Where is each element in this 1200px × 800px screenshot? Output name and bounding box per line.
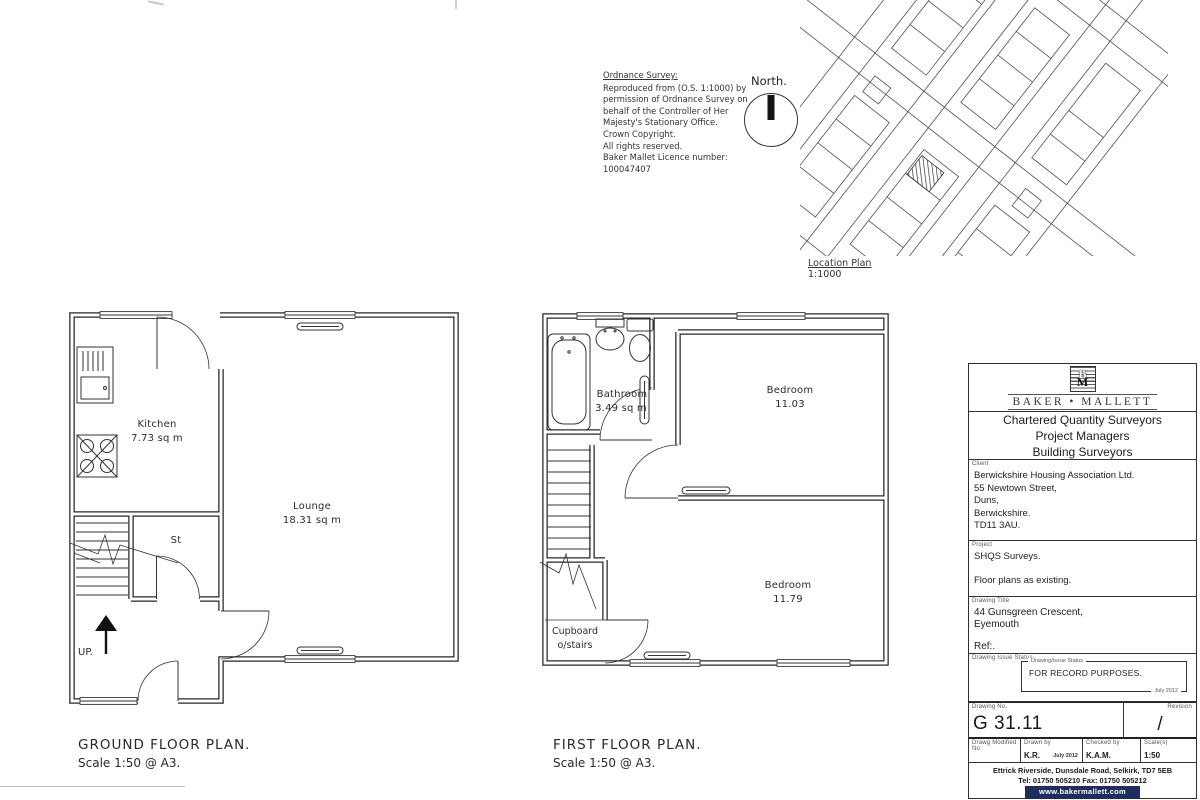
os-note-line: Crown Copyright. (603, 129, 755, 141)
first-floor-detail (540, 313, 850, 667)
os-note-line: All rights reserved. (603, 141, 755, 153)
issue-status-box: Drawing/Issue Status FOR RECORD PURPOSES… (1021, 661, 1187, 692)
door-swing (157, 556, 200, 599)
project-line: Floor plans as existing. (974, 575, 1196, 586)
footer-website: www.bakermallett.com (1025, 786, 1140, 798)
modified-cell: Drawg Modified No (969, 739, 1021, 762)
location-plan-map (800, 0, 1168, 256)
revision-label: Revision (1167, 704, 1192, 710)
stair-treads (548, 450, 591, 549)
drawing-title-line: Eyemouth (974, 619, 1196, 632)
first-floor-plan: Bathroom 3.49 sq m Bedroom 11.03 Bedroom… (532, 298, 902, 698)
room-area-bedroom1: 11.03 (775, 399, 805, 410)
checked-by-cell: Checked by K.A.M. (1083, 739, 1141, 762)
ground-floor-caption: GROUND FLOOR PLAN. Scale 1:50 @ A3. (78, 737, 250, 770)
up-label: UP. (78, 647, 93, 658)
sink-unit (77, 347, 113, 403)
ground-floor-walls (72, 315, 456, 701)
scale-value: 1:50 (1144, 751, 1160, 760)
room-label-bedroom2: Bedroom (765, 580, 812, 591)
os-note-title: Ordnance Survey: (603, 70, 755, 82)
drawing-ref: Ref:. (974, 641, 1196, 654)
stair-treads (76, 523, 128, 595)
footer-section: Ettrick Riverside, Dunsdale Road, Selkir… (969, 763, 1196, 798)
drawing-number-cell: Drawing No. G 31.11 (969, 703, 1124, 737)
client-line: TD11 3AU. (974, 520, 1196, 532)
door-swing (625, 445, 678, 498)
service-line: Chartered Quantity Surveyors (1003, 412, 1162, 428)
os-note-line: Majesty's Stationary Office. (603, 117, 755, 129)
drawn-by-label: Drawn by (1024, 740, 1051, 746)
client-line: Berwickshire Housing Association Ltd. (974, 470, 1196, 482)
room-label-cupboard: Cupboard (552, 626, 598, 637)
logo-section: B M BAKER • MALLETT (969, 364, 1196, 412)
toilet (627, 319, 653, 362)
modified-label: Drawg Modified No (972, 740, 1020, 752)
revision-cell: Revision / (1124, 703, 1196, 737)
location-plan-title: Location Plan (808, 258, 871, 269)
first-floor-caption: FIRST FLOOR PLAN. Scale 1:50 @ A3. (553, 737, 702, 770)
footer-telfax: Tel: 01750 505210 Fax: 01750 505212 (969, 776, 1196, 786)
os-note-line: Reproduced from (O.S. 1:1000) by (603, 83, 755, 95)
ground-floor-title: GROUND FLOOR PLAN. (78, 737, 250, 753)
drawn-date: July 2012 (1053, 753, 1078, 759)
scale-label: Scale(s) (1144, 740, 1168, 746)
checked-by-value: K.A.M. (1086, 751, 1111, 760)
baker-mallett-logo-icon: B M (1070, 366, 1096, 392)
wall-segment (72, 315, 456, 701)
client-line: Duns, (974, 495, 1196, 507)
drawing-title-line: 44 Gunsgreen Crescent, (974, 607, 1196, 620)
scan-artifact (0, 786, 185, 787)
room-area-lounge: 18.31 sq m (283, 515, 341, 526)
ground-floor-scale: Scale 1:50 @ A3. (78, 756, 250, 770)
room-label-bathroom: Bathroom (597, 389, 648, 400)
door-swing (157, 317, 209, 369)
room-area-bathroom: 3.49 sq m (595, 403, 647, 414)
ordnance-survey-note: Ordnance Survey: Reproduced from (O.S. 1… (603, 70, 755, 175)
revision-value: / (1157, 714, 1162, 736)
services-section: Chartered Quantity Surveyors Project Man… (969, 412, 1196, 460)
project-label: Project (972, 542, 992, 548)
service-line: Building Surveyors (1032, 444, 1132, 460)
drawing-title-section: Drawing Title 44 Gunsgreen Crescent, Eye… (969, 597, 1196, 655)
drawing-title-label: Drawing Title (972, 598, 1009, 606)
issue-box-label: Drawing/Issue Status (1028, 658, 1086, 664)
ground-floor-plan: Kitchen 7.73 sq m Lounge 18.31 sq m St U… (60, 297, 480, 715)
drawn-by-cell: Drawn by K.R. July 2012 (1021, 739, 1083, 762)
cooker (77, 435, 117, 477)
issue-date: July 2012 (1151, 688, 1181, 694)
bath (548, 334, 590, 430)
os-note-line: 100047407 (603, 164, 755, 176)
logo-letter-m: M (1077, 378, 1088, 388)
title-block: B M BAKER • MALLETT Chartered Quantity S… (968, 363, 1197, 799)
stair-break-line (74, 553, 100, 563)
door-gaps (138, 310, 220, 706)
os-note-line: behalf of the Controller of Her (603, 106, 755, 118)
room-area-bedroom2: 11.79 (773, 594, 803, 605)
drawing-number-value: G 31.11 (973, 713, 1043, 735)
client-line: Berwickshire. (974, 508, 1196, 520)
service-line: Project Managers (1035, 428, 1129, 444)
first-floor-title: FIRST FLOOR PLAN. (553, 737, 702, 753)
checked-by-label: Checked by (1086, 740, 1120, 746)
door-swing (605, 620, 648, 663)
wash-basin (596, 319, 624, 350)
room-label-lounge: Lounge (293, 501, 331, 512)
door-swing (221, 611, 269, 659)
os-note-line: Baker Mallet Licence number: (603, 152, 755, 164)
ground-floor-walls (72, 315, 456, 701)
drawing-number-section: Drawing No. G 31.11 Revision / (969, 702, 1196, 739)
drawn-by-value: K.R. (1024, 751, 1040, 760)
scan-artifact (455, 0, 457, 9)
room-label-kitchen: Kitchen (138, 419, 177, 430)
scale-cell: Scale(s) 1:50 (1141, 739, 1196, 762)
location-plan-scale: 1:1000 (808, 269, 871, 280)
footer-address: Ettrick Riverside, Dunsdale Road, Selkir… (969, 766, 1196, 776)
project-line: SHQS Surveys. (974, 551, 1196, 562)
project-section: Project SHQS Surveys. Floor plans as exi… (969, 541, 1196, 597)
location-plan-caption: Location Plan 1:1000 (808, 258, 871, 280)
client-line: 55 Newtown Street, (974, 483, 1196, 495)
north-label: North. (751, 74, 787, 88)
wall-segment (72, 315, 456, 701)
issue-status-value: FOR RECORD PURPOSES. (1029, 668, 1142, 678)
room-area-kitchen: 7.73 sq m (131, 433, 183, 444)
issue-status-section: Drawing Issue Status Drawing/Issue Statu… (969, 654, 1196, 702)
room-label-store: St (171, 535, 182, 546)
fields-row: Drawg Modified No Drawn by K.R. July 201… (969, 739, 1196, 763)
north-needle (768, 95, 775, 120)
client-section: Client Berwickshire Housing Association … (969, 460, 1196, 541)
drawing-number-label: Drawing No. (972, 704, 1007, 710)
os-note-line: permission of Ordnance Survey on (603, 94, 755, 106)
room-label-cupboard2: o/stairs (557, 640, 592, 651)
brand-name: BAKER • MALLETT (1008, 394, 1158, 410)
first-floor-scale: Scale 1:50 @ A3. (553, 756, 702, 770)
door-swing (138, 661, 178, 701)
client-label: Client (972, 461, 989, 469)
north-arrow-icon (744, 93, 798, 147)
scan-artifact (148, 0, 164, 5)
up-arrow (95, 615, 117, 654)
room-label-bedroom1: Bedroom (767, 385, 814, 396)
scanned-drawing-sheet: Ordnance Survey: Reproduced from (O.S. 1… (0, 0, 1200, 800)
